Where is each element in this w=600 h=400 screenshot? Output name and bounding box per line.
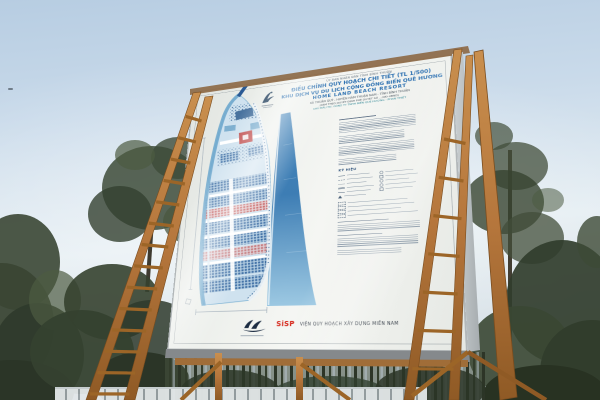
photo-scene: { "scene_description": "Photo of a resor… [0,0,600,400]
under-board-structure [175,353,468,400]
scaffold-frame [0,0,600,400]
right-outer-pole [474,50,517,400]
